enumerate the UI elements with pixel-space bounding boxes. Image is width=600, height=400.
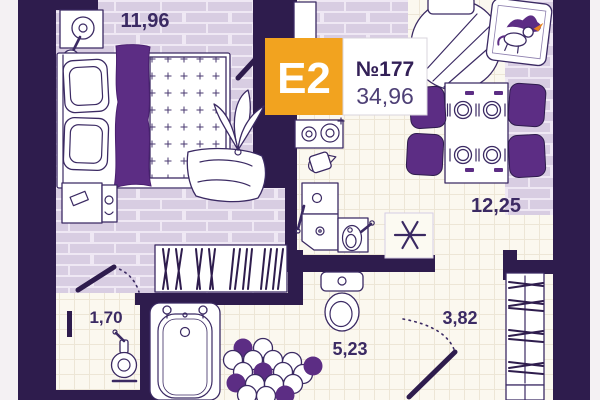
floor-plan-svg: E2 №177 34,96 11,96 12,25 1,70 5,23 3,82 [0, 0, 600, 400]
accent-strip-top [310, 0, 408, 38]
floor-plan: E2 №177 34,96 11,96 12,25 1,70 5,23 3,82 [0, 0, 600, 400]
kitchen-cabinet-icon [296, 183, 338, 250]
wall [553, 0, 590, 400]
wall [67, 311, 72, 337]
area-label-kitchen-living: 12,25 [471, 195, 521, 217]
blanket-icon [187, 149, 265, 202]
chair-icon [406, 133, 444, 176]
badge-total-area: 34,96 [356, 83, 414, 109]
dining-table-icon [445, 83, 508, 183]
layout-badge: E2 №177 34,96 [265, 38, 427, 115]
hallway-furniture [506, 273, 544, 400]
cooktop-star-icon [385, 213, 433, 258]
wardrobe-hangers-icon [155, 245, 287, 292]
chair-icon [508, 134, 546, 178]
chair-icon [508, 83, 547, 127]
badge-unit-number: №177 [356, 58, 414, 81]
curtain-throw-icon [114, 45, 151, 188]
badge-layout-type: E2 [277, 54, 331, 103]
area-label-bedroom: 11,96 [121, 10, 170, 32]
bathtub-icon [150, 303, 220, 400]
side-table-icon [102, 185, 117, 222]
nightstand-icon [62, 183, 102, 223]
wall [56, 390, 160, 400]
wall [18, 0, 56, 400]
stove-icon [295, 118, 344, 148]
area-label-hallway: 3,82 [442, 308, 477, 328]
wall [25, 0, 98, 10]
wall [503, 260, 553, 274]
area-label-bathroom: 5,23 [332, 339, 367, 359]
unicorn-picture-icon [486, 0, 553, 66]
toilet-icon [321, 272, 363, 331]
area-label-wc: 1,70 [89, 308, 122, 327]
entry-wardrobe-icon [506, 273, 544, 400]
